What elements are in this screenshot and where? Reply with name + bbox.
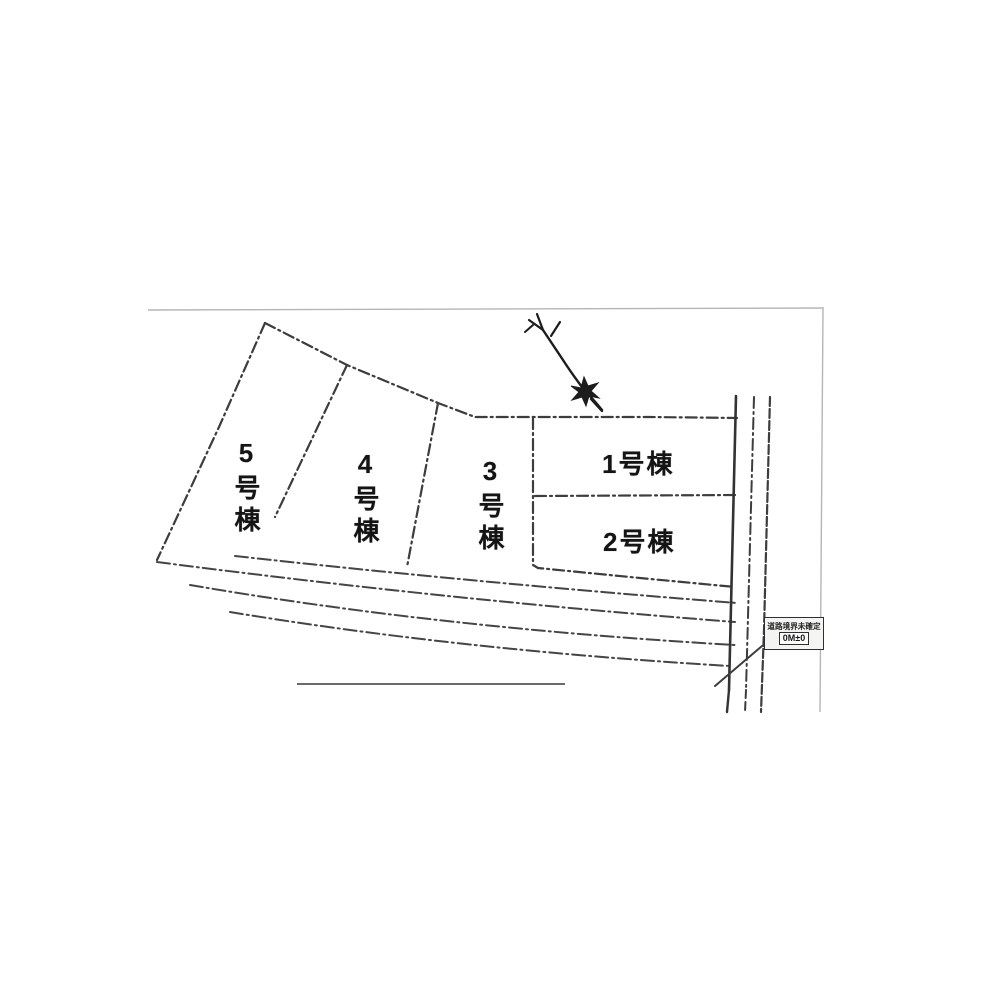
lot-1-label: 1号棟 (602, 449, 674, 480)
road-annotation-text: 道路境界未確定 (767, 622, 820, 631)
lot-2-label: 2号棟 (603, 527, 675, 558)
lot-5-label: 5号棟 (230, 438, 261, 538)
divider-lot1-lot2 (535, 495, 737, 496)
lot-4-label: 4号棟 (349, 449, 380, 549)
site-plan-image: 5号棟 4号棟 3号棟 1号棟 2号棟 道路境界未確定 0M±0 (0, 0, 1000, 990)
road-elevation-value: 0M±0 (779, 632, 809, 645)
north-arrow-icon (525, 314, 602, 411)
lot-3-label: 3号棟 (474, 456, 505, 556)
road-annotation-box: 道路境界未確定 0M±0 (764, 617, 824, 650)
